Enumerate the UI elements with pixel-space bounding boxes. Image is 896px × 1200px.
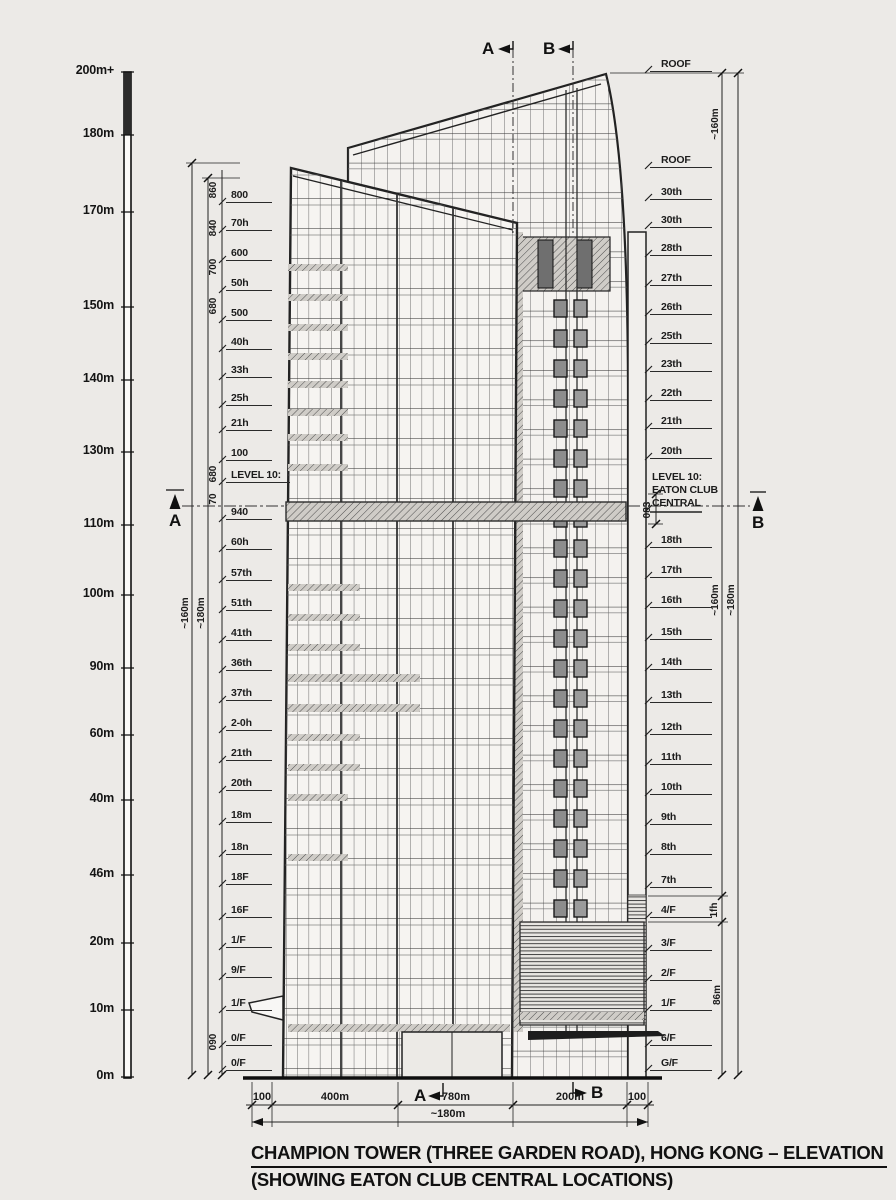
level10-label-line2: EATON CLUB	[650, 483, 712, 497]
scale-label: 110m	[40, 516, 114, 531]
level10-label-line1: LEVEL 10:	[650, 470, 712, 484]
floor-label-left: 70h	[226, 216, 272, 231]
floor-label-left: 25h	[226, 391, 272, 406]
scale-label: 10m	[40, 1001, 114, 1016]
dim-num: 680	[208, 297, 219, 314]
podium-louver-block	[520, 922, 644, 1025]
floor-label-left: 500	[226, 306, 272, 321]
dim-num: 700	[208, 258, 219, 275]
floor-label-left: 41th	[226, 626, 272, 641]
dim-num: 70	[208, 493, 219, 505]
floor-label-right: 13th	[650, 688, 712, 703]
floor-label-right: 8th	[650, 840, 712, 855]
floor-label-right: 17th	[650, 563, 712, 578]
scale-label: 60m	[40, 726, 114, 741]
floor-label-right: 27th	[650, 271, 712, 286]
core-top-window	[577, 240, 592, 288]
floor-label-right: 10th	[650, 780, 712, 795]
core-top-band	[518, 237, 610, 291]
floor-label-right: 3/F	[650, 936, 712, 951]
floor-label-left: 1/F	[226, 933, 272, 948]
floor-label-left: 800	[226, 188, 272, 203]
scale-label: 20m	[40, 934, 114, 949]
floor-label-left: 18n	[226, 840, 272, 855]
scale-label: 150m	[40, 298, 114, 313]
floor-label-left: 36th	[226, 656, 272, 671]
section-marker-a-level: A	[169, 511, 181, 531]
floor-label-right: G/F	[650, 1056, 712, 1071]
core-window-stack	[552, 295, 592, 1015]
floor-label-left: 9/F	[226, 963, 272, 978]
drawing-title-line1: CHAMPION TOWER (THREE GARDEN ROAD), HONG…	[251, 1142, 887, 1168]
floor-label-left: 0/F	[226, 1056, 272, 1071]
floor-label-right: 2/F	[650, 966, 712, 981]
drawing-linework: ~160m ~180m ~160m ~160m ~180m 1fh 86m 08…	[0, 0, 896, 1200]
level10-label-line3: CENTRAL	[650, 496, 712, 510]
floor-label-right: 30th	[650, 213, 712, 228]
floor-label-right-roof: ROOF	[650, 57, 712, 72]
floor-label-right: 11th	[650, 750, 712, 765]
section-marker-b-level: B	[752, 513, 764, 533]
floor-label-right: 12th	[650, 720, 712, 735]
floor-label-right: 21th	[650, 414, 712, 429]
floor-label-left: 21h	[226, 416, 272, 431]
scale-label: 46m	[40, 866, 114, 881]
floor-label-right-roof2: ROOF	[650, 153, 712, 168]
core-top-window	[538, 240, 553, 288]
floor-label-right: 15th	[650, 625, 712, 640]
floor-label-left: 33h	[226, 363, 272, 378]
dim-num: 090	[208, 1033, 219, 1050]
level10-highlight-band	[286, 502, 626, 521]
bottom-dim-780m: 780m	[424, 1091, 488, 1104]
floor-label-right: 20th	[650, 444, 712, 459]
floor-label-left: 18m	[226, 808, 272, 823]
scale-top-filled-segment	[124, 72, 131, 135]
dim-num: 840	[208, 219, 219, 236]
floor-label-left-level10: LEVEL 10:	[226, 468, 290, 483]
floor-label-left: 20th	[226, 776, 272, 791]
floor-label-right: 9th	[650, 810, 712, 825]
floor-label-left: 21th	[226, 746, 272, 761]
dim-num: 680	[208, 465, 219, 482]
section-marker-b-top: B	[543, 39, 555, 59]
dim-seg-86m: 86m	[712, 985, 723, 1005]
floor-label-right: 25th	[650, 329, 712, 344]
scale-label: 40m	[40, 791, 114, 806]
scale-label: 0m	[40, 1068, 114, 1083]
floor-label-left: 2-0h	[226, 716, 272, 731]
bottom-dim-100-right: 100	[605, 1091, 669, 1104]
drawing-title-line2: (SHOWING EATON CLUB CENTRAL LOCATIONS)	[251, 1169, 673, 1191]
floor-label-right: 23th	[650, 357, 712, 372]
scale-label: 180m	[40, 126, 114, 141]
bottom-dim-total: ~180m	[416, 1108, 480, 1121]
scale-label: 90m	[40, 659, 114, 674]
floor-label-right: 26th	[650, 300, 712, 315]
bottom-dim-100-left: 100	[230, 1091, 294, 1104]
floor-label-left: 1/F	[226, 996, 272, 1011]
floor-label-right: 22th	[650, 386, 712, 401]
floor-label-left: 51th	[226, 596, 272, 611]
floor-label-left: 600	[226, 246, 272, 261]
elevation-drawing-sheet: ~160m ~180m ~160m ~160m ~180m 1fh 86m 08…	[0, 0, 896, 1200]
podium-lintel	[288, 1024, 510, 1032]
floor-label-left: 50h	[226, 276, 272, 291]
floor-label-left: 18F	[226, 870, 272, 885]
floor-label-left: 57th	[226, 566, 272, 581]
floor-label-right: 16th	[650, 593, 712, 608]
floor-label-right: 14th	[650, 655, 712, 670]
floor-label-right: 30th	[650, 185, 712, 200]
podium-hatch-strip	[520, 1012, 644, 1020]
floor-label-right: 28th	[650, 241, 712, 256]
floor-label-left: 100	[226, 446, 272, 461]
bottom-dim-200m: 200m	[538, 1091, 602, 1104]
floor-label-left: 16F	[226, 903, 272, 918]
floor-label-left: 940	[226, 505, 272, 520]
dim-right-outer: ~180m	[726, 584, 737, 616]
floor-label-left: 0/F	[226, 1031, 272, 1046]
floor-label-left: 40h	[226, 335, 272, 350]
floor-label-right: 6/F	[650, 1031, 712, 1046]
dim-left-outer: ~160m	[180, 597, 191, 629]
floor-label-right: 1/F	[650, 996, 712, 1011]
floor-label-right: 4/F	[650, 903, 712, 918]
floor-label-left: 60h	[226, 535, 272, 550]
scale-label: 140m	[40, 371, 114, 386]
scale-label: 170m	[40, 203, 114, 218]
floor-label-left: 37th	[226, 686, 272, 701]
scale-label: 100m	[40, 586, 114, 601]
height-scale-bar	[121, 72, 134, 1078]
dim-num: 860	[208, 181, 219, 198]
dim-left-inner: ~180m	[196, 597, 207, 629]
dim-right-top: ~160m	[710, 108, 721, 140]
bottom-dim-400m: 400m	[303, 1091, 367, 1104]
floor-label-right: 18th	[650, 533, 712, 548]
scale-label: 200m+	[40, 63, 114, 78]
front-tower-curtainwall-grid	[283, 168, 517, 1078]
floor-label-right: 7th	[650, 873, 712, 888]
scale-label: 130m	[40, 443, 114, 458]
section-marker-a-top: A	[482, 39, 494, 59]
